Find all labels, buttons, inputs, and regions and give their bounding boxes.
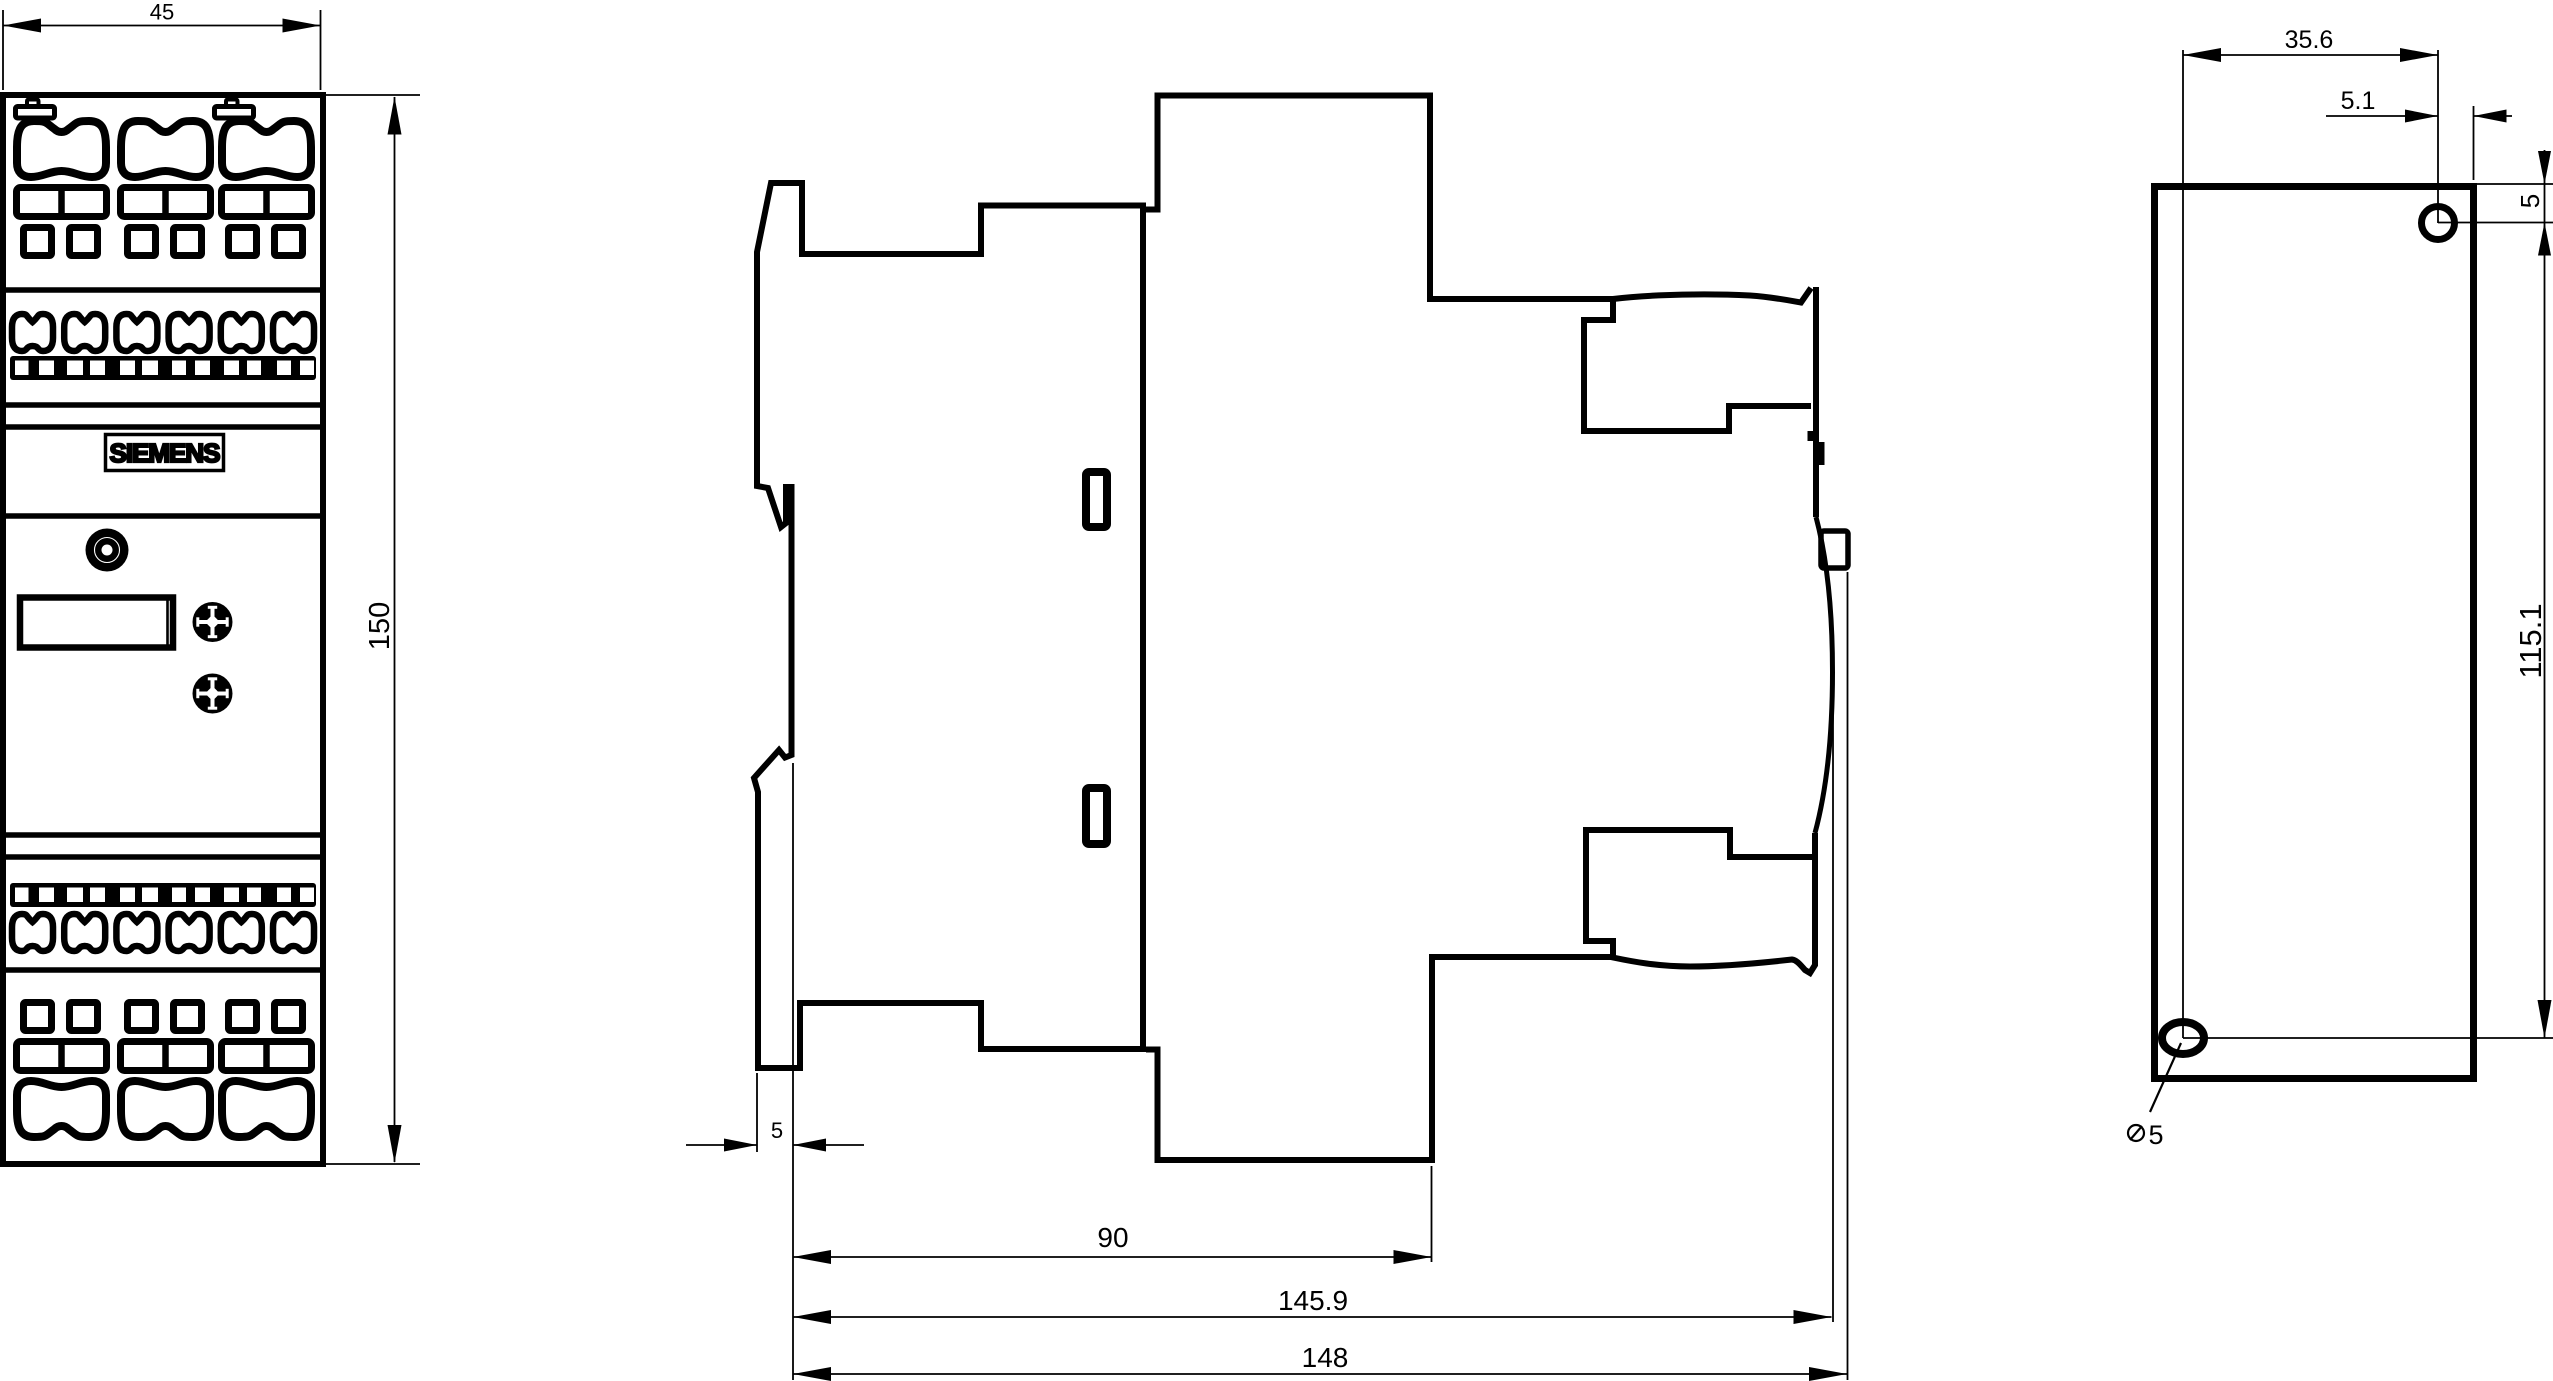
svg-text:145.9: 145.9 (1278, 1285, 1348, 1316)
svg-text:115.1: 115.1 (2513, 603, 2548, 678)
svg-text:148: 148 (1302, 1342, 1349, 1373)
svg-text:35.6: 35.6 (2285, 26, 2334, 54)
svg-text:150: 150 (364, 602, 396, 650)
svg-text:5.1: 5.1 (2341, 87, 2376, 115)
svg-text:5: 5 (2148, 1120, 2163, 1150)
svg-text:5: 5 (2515, 194, 2545, 208)
svg-text:45: 45 (150, 0, 174, 25)
svg-text:5: 5 (771, 1118, 783, 1143)
svg-text:SIEMENS: SIEMENS (109, 438, 220, 468)
svg-text:90: 90 (1097, 1222, 1128, 1253)
